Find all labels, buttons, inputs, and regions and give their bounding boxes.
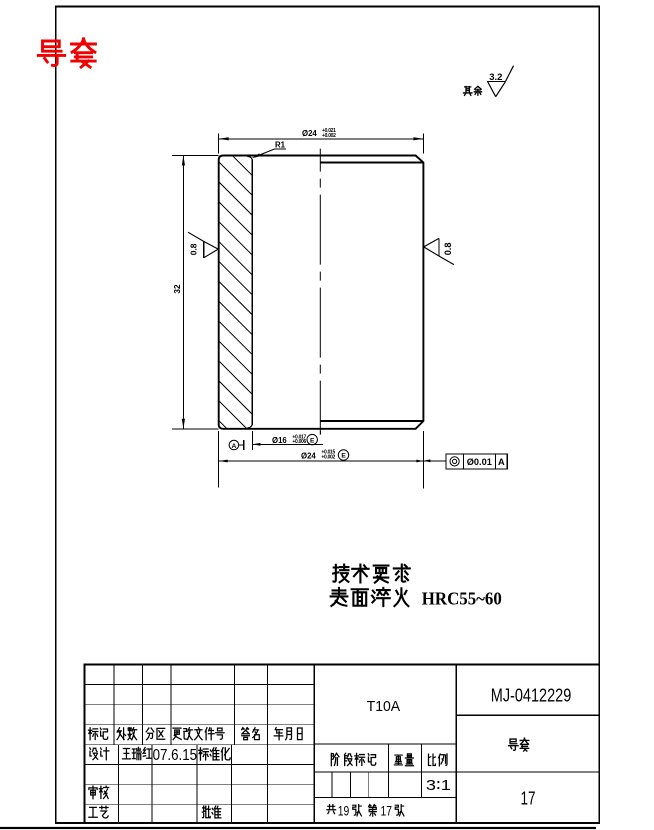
svg-text:HRC55~60: HRC55~60 bbox=[422, 589, 502, 609]
svg-text:Ø24: Ø24 bbox=[301, 451, 316, 460]
svg-text:+0.002: +0.002 bbox=[321, 454, 335, 460]
svg-text:07.6.15: 07.6.15 bbox=[153, 747, 198, 764]
svg-text:32: 32 bbox=[173, 284, 182, 294]
svg-text:17: 17 bbox=[381, 803, 393, 818]
svg-text:A: A bbox=[231, 443, 236, 450]
svg-text:3∶1: 3∶1 bbox=[426, 777, 451, 794]
svg-text:MJ-0412229: MJ-0412229 bbox=[491, 684, 572, 705]
svg-text:E: E bbox=[310, 437, 315, 444]
svg-text:17: 17 bbox=[521, 787, 536, 808]
svg-text:T10A: T10A bbox=[367, 698, 401, 715]
svg-text:E: E bbox=[341, 453, 346, 460]
svg-text:Ø16: Ø16 bbox=[272, 436, 287, 445]
svg-text:Ø24: Ø24 bbox=[302, 129, 317, 138]
svg-text:19: 19 bbox=[338, 803, 350, 818]
svg-text:Ø0.01: Ø0.01 bbox=[467, 457, 492, 467]
svg-text:R1: R1 bbox=[275, 140, 286, 149]
svg-text:+0.002: +0.002 bbox=[322, 133, 336, 139]
svg-text:A: A bbox=[498, 457, 505, 467]
svg-text:0.8: 0.8 bbox=[188, 243, 198, 255]
svg-text:0.8: 0.8 bbox=[443, 243, 453, 256]
svg-text:+0.006: +0.006 bbox=[292, 439, 306, 445]
